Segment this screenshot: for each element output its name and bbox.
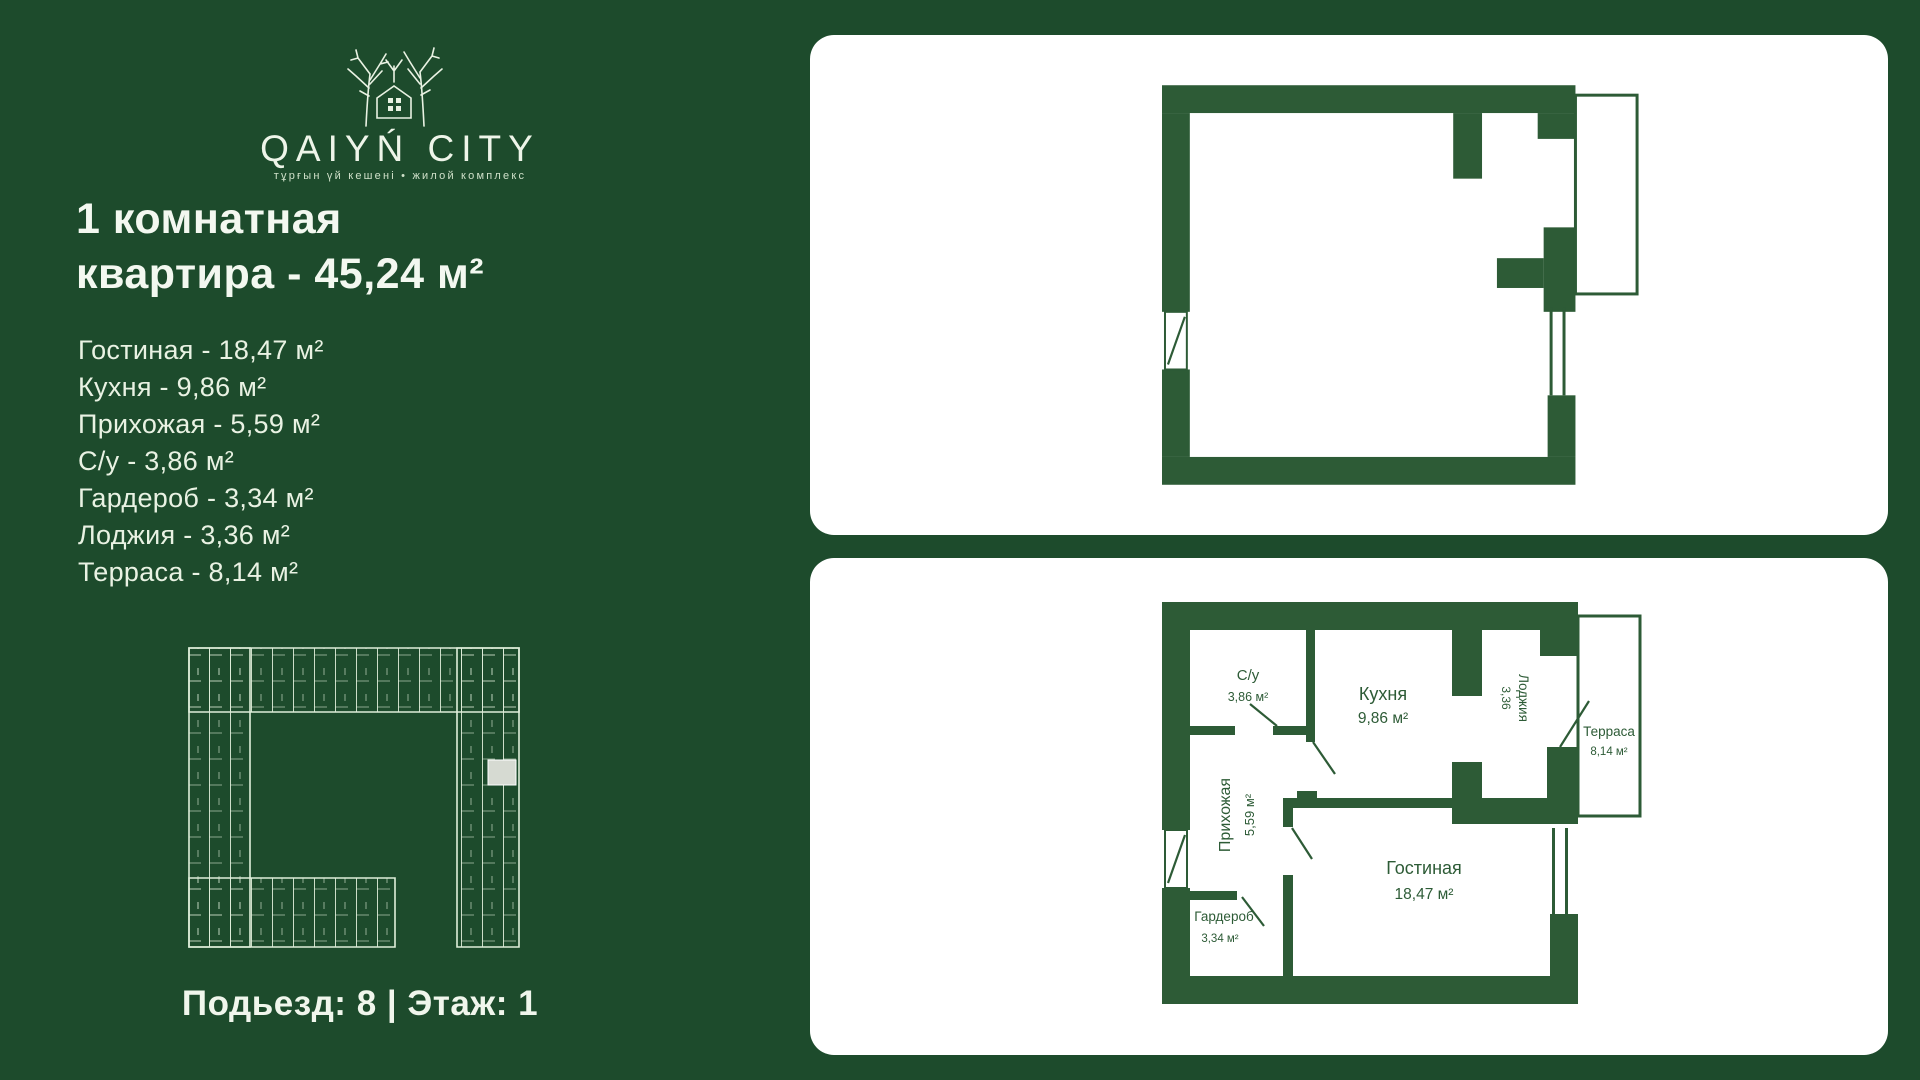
- label-living-area: 18,47 м²: [1395, 886, 1454, 903]
- minimap-bottom-bar: [189, 878, 395, 947]
- room-line-wardrobe: Гардероб - 3,34 м²: [78, 480, 638, 517]
- brand-tagline: тұрғын үй кешені • жилой комплекс: [160, 170, 640, 182]
- room-line-hall: Прихожая - 5,59 м²: [78, 406, 638, 443]
- tree-house-logo-icon: [315, 38, 475, 130]
- room-line-loggia: Лоджия - 3,36 м²: [78, 517, 638, 554]
- floorplan-detailed: С/у 3,86 м² Кухня 9,86 м² Лоджия 3,36 Те…: [1162, 602, 1652, 1004]
- label-terrace-name: Терраса: [1583, 724, 1635, 739]
- shell-walls: [1162, 85, 1575, 485]
- apartment-title-line1: 1 комнатная: [76, 192, 696, 247]
- minimap-right-wing: [457, 648, 519, 947]
- shell-right-window: [1550, 308, 1566, 395]
- floorplan-panel-shell: [810, 35, 1888, 535]
- label-loggia-name: Лоджия: [1516, 674, 1531, 722]
- floorplan-panel-detailed: С/у 3,86 м² Кухня 9,86 м² Лоджия 3,36 Те…: [810, 558, 1888, 1055]
- floorplan-shell: [1162, 85, 1649, 485]
- label-bath-area: 3,86 м²: [1228, 690, 1269, 704]
- label-wardrobe-area: 3,34 м²: [1201, 933, 1238, 945]
- room-line-terrace: Терраса - 8,14 м²: [78, 554, 638, 591]
- plan-right-window: [1552, 828, 1568, 914]
- room-line-bath: С/у - 3,86 м²: [78, 443, 638, 480]
- label-bath-name: С/у: [1237, 667, 1260, 684]
- room-line-living: Гостиная - 18,47 м²: [78, 332, 638, 369]
- poster-background: { "brand": { "name": "QAIYŃ CITY", "tagl…: [0, 0, 1920, 1080]
- shell-left-window: [1165, 312, 1187, 370]
- label-terrace-area: 8,14 м²: [1590, 746, 1627, 758]
- label-kitchen-area: 9,86 м²: [1358, 710, 1408, 727]
- plan-terrace-outline: [1578, 616, 1640, 816]
- label-loggia-area: 3,36: [1499, 686, 1513, 710]
- building-floor-minimap: [188, 642, 540, 954]
- apartment-title: 1 комнатная квартира - 45,24 м²: [76, 192, 696, 302]
- label-living-name: Гостиная: [1386, 858, 1462, 878]
- shell-terrace-outline: [1575, 95, 1637, 294]
- entrance-floor-label: Подьезд: 8 | Этаж: 1: [130, 984, 590, 1024]
- minimap-highlighted-unit: [488, 760, 516, 785]
- label-wardrobe-name: Гардероб: [1194, 909, 1254, 924]
- plan-left-window: [1165, 830, 1187, 888]
- label-hall-area: 5,59 м²: [1242, 793, 1257, 836]
- label-hall-name: Прихожая: [1217, 778, 1234, 852]
- label-kitchen-name: Кухня: [1359, 684, 1407, 704]
- room-list: Гостиная - 18,47 м² Кухня - 9,86 м² Прих…: [78, 332, 638, 591]
- brand-name: QAIYŃ CITY: [160, 128, 640, 170]
- room-line-kitchen: Кухня - 9,86 м²: [78, 369, 638, 406]
- apartment-title-line2: квартира - 45,24 м²: [76, 247, 696, 302]
